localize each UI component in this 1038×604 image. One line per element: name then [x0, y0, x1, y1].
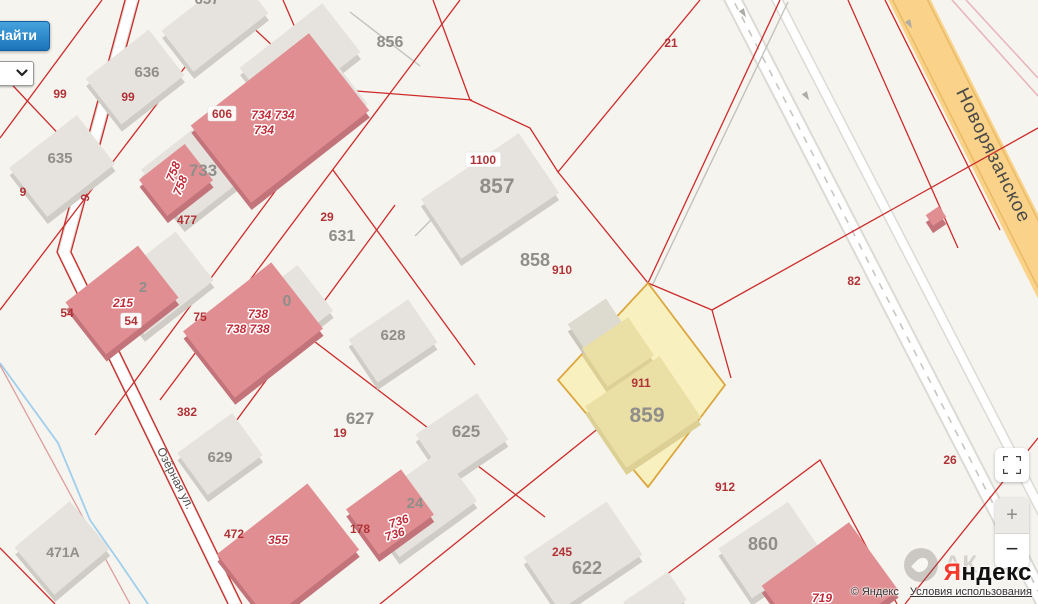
- building-number-red: 738: [248, 307, 268, 321]
- building-number: 859: [629, 404, 664, 427]
- parcel-number: 29: [320, 210, 334, 224]
- parcel-number: 382: [177, 405, 197, 419]
- parcel-number: 178: [350, 522, 370, 536]
- building-number: 657: [194, 0, 219, 8]
- road-novoryazanskoye: [902, 0, 1038, 350]
- building-number-red: 738 738: [226, 322, 270, 336]
- road-service: [772, 0, 1038, 570]
- fullscreen-button[interactable]: [995, 448, 1029, 482]
- building-number: 471A: [46, 544, 79, 560]
- parcel-number: 21: [664, 36, 678, 50]
- building-number: 858: [520, 250, 550, 270]
- building-number-red: 734 734: [251, 108, 295, 122]
- building-number-red: 734: [254, 123, 274, 137]
- building-gray: [520, 502, 645, 604]
- building-number: 635: [47, 150, 72, 167]
- building-number: 857: [479, 175, 514, 198]
- parcel-number: 910: [552, 263, 572, 277]
- parcel-number: 26: [943, 453, 957, 467]
- zoom-control: + −: [995, 498, 1029, 568]
- chevron-down-icon: [16, 68, 28, 78]
- building-gray: [620, 572, 690, 604]
- parcel-number: 54: [60, 306, 74, 320]
- search-type-select[interactable]: [0, 61, 34, 86]
- building-number: 0: [283, 293, 292, 310]
- parcel-number: 912: [715, 480, 735, 494]
- parcel-number: 75: [193, 310, 207, 324]
- building-number: 631: [329, 228, 356, 245]
- building-number: 2: [139, 279, 147, 296]
- parcel-number: 9: [20, 185, 27, 199]
- building-number: 856: [377, 34, 404, 51]
- fullscreen-icon: [1003, 456, 1021, 474]
- building-number: 628: [380, 327, 405, 344]
- building-number: 636: [134, 64, 159, 81]
- parcel-number: 477: [177, 213, 197, 227]
- building-number: 733: [189, 161, 217, 180]
- building-number: 627: [346, 409, 374, 428]
- parcel-number: 82: [847, 274, 861, 288]
- parcel-number: 911: [631, 376, 651, 390]
- parcel-boundary-line: [558, 0, 700, 172]
- parcel-number-badge: 606: [212, 107, 232, 121]
- building-number-red: 215: [112, 296, 133, 310]
- yandex-logo: Яндекс: [851, 562, 1032, 584]
- building-number: 625: [452, 422, 480, 441]
- building-number: 622: [572, 558, 602, 578]
- parcel-number: 19: [333, 426, 347, 440]
- map-canvas[interactable]: 6061100546578566366358577336318586282062…: [0, 0, 1038, 604]
- parcel-number: 472: [224, 527, 244, 541]
- building-number-red: 719: [812, 591, 832, 604]
- building-number: 629: [207, 449, 232, 466]
- map-attribution: Яндекс © Яндекс Условия использования: [851, 562, 1032, 598]
- search-button[interactable]: Найти: [0, 21, 50, 51]
- one-way-arrow-icon: [802, 91, 812, 102]
- zoom-in-button[interactable]: +: [995, 498, 1029, 534]
- building-number: 860: [748, 534, 778, 554]
- railway-line: [966, 0, 1038, 78]
- parcel-boundary-line: [712, 310, 731, 378]
- parcel-number: 99: [53, 87, 67, 101]
- road-service: [772, 0, 1038, 570]
- building-pink: [214, 484, 363, 604]
- building-number-red: 355: [268, 533, 288, 547]
- parcel-number-badge: 54: [124, 314, 138, 328]
- parcel-number-badge: 1100: [470, 153, 496, 167]
- parcel-number: 245: [552, 545, 572, 559]
- terms-of-use-link[interactable]: Условия использования: [910, 586, 1032, 598]
- map-viewport: 6061100546578566366358577336318586282062…: [0, 0, 1038, 604]
- copyright-text: © Яндекс: [851, 586, 899, 598]
- parcel-number: 99: [121, 90, 135, 104]
- building-number: 24: [407, 495, 424, 512]
